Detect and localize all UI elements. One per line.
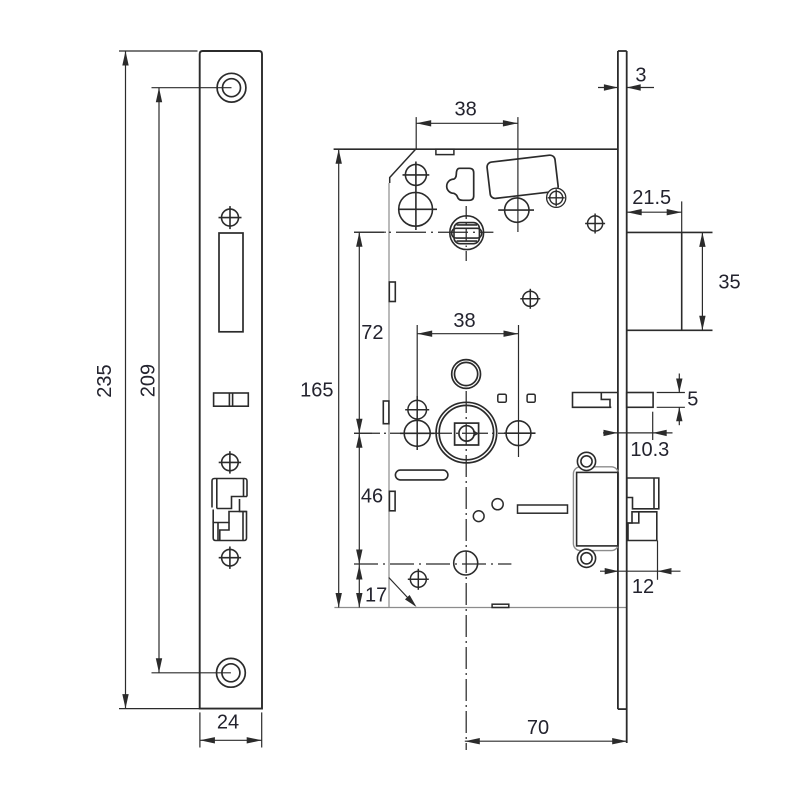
svg-text:24: 24 [217,712,239,734]
svg-text:46: 46 [361,486,383,508]
svg-text:12: 12 [632,576,654,598]
svg-text:21.5: 21.5 [632,187,671,209]
svg-text:35: 35 [718,272,740,294]
svg-text:165: 165 [300,379,333,401]
svg-text:10.3: 10.3 [630,439,669,461]
svg-text:17: 17 [365,584,387,606]
svg-text:3: 3 [635,65,646,87]
svg-text:70: 70 [527,717,549,739]
svg-text:38: 38 [453,310,475,332]
svg-text:235: 235 [94,364,116,397]
svg-text:5: 5 [687,389,698,411]
svg-text:209: 209 [138,364,160,397]
svg-text:38: 38 [454,99,476,121]
svg-text:72: 72 [361,322,383,344]
